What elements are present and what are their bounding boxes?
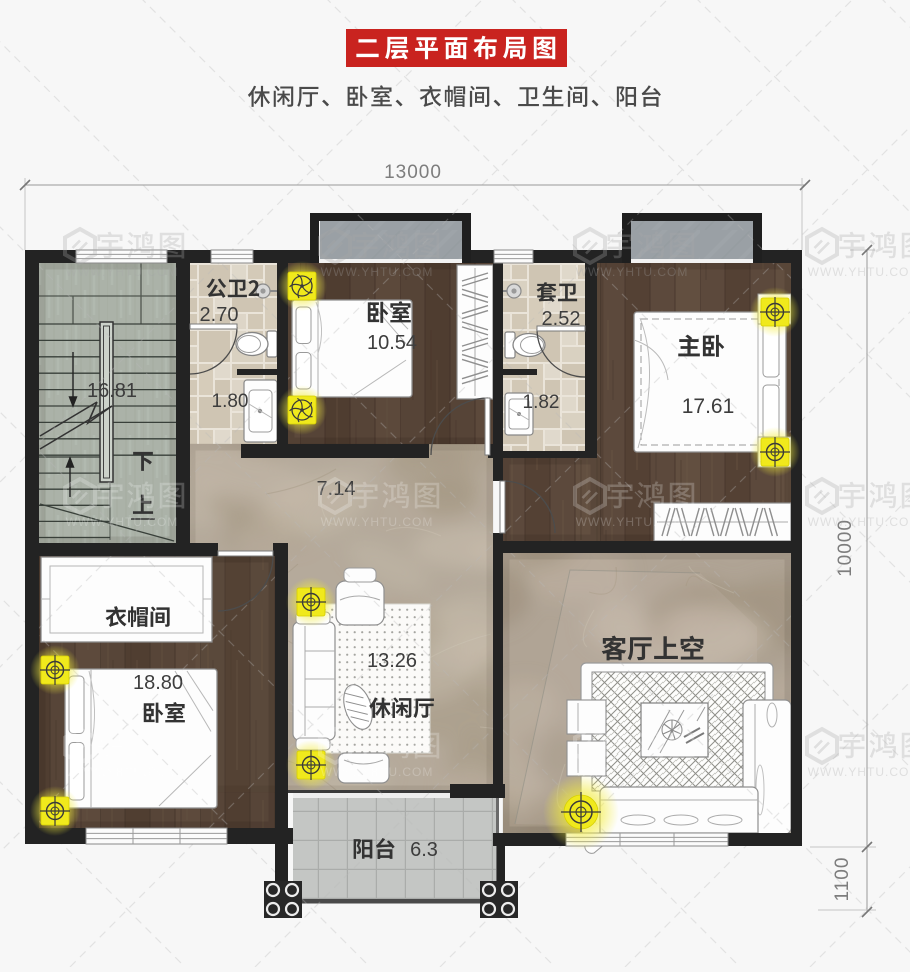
svg-text:WWW.YHTU.COM: WWW.YHTU.COM (576, 515, 689, 529)
svg-text:WWW.YHTU.COM: WWW.YHTU.COM (321, 265, 434, 279)
svg-text:16.81: 16.81 (87, 380, 137, 402)
svg-text:WWW.YHTU.COM: WWW.YHTU.COM (321, 765, 434, 779)
svg-text:2.52: 2.52 (542, 308, 581, 330)
svg-text:WWW.YHTU.COM: WWW.YHTU.COM (808, 765, 910, 779)
svg-text:WWW.YHTU.COM: WWW.YHTU.COM (576, 265, 689, 279)
svg-text:10.54: 10.54 (367, 332, 417, 354)
svg-text:WWW.YHTU.COM: WWW.YHTU.COM (66, 265, 179, 279)
svg-text:1100: 1100 (832, 857, 853, 902)
svg-text:6.3: 6.3 (410, 839, 438, 861)
svg-text:WWW.YHTU.COM: WWW.YHTU.COM (66, 515, 179, 529)
svg-text:2.70: 2.70 (200, 304, 239, 326)
svg-text:WWW.YHTU.COM: WWW.YHTU.COM (808, 265, 910, 279)
svg-text:13.26: 13.26 (367, 650, 417, 672)
svg-text:WWW.YHTU.COM: WWW.YHTU.COM (576, 765, 689, 779)
svg-text:WWW.YHTU.COM: WWW.YHTU.COM (321, 515, 434, 529)
svg-text:1.82: 1.82 (523, 392, 560, 413)
svg-text:WWW.YHTU.COM: WWW.YHTU.COM (66, 765, 179, 779)
svg-text:13000: 13000 (384, 162, 442, 183)
svg-text:1.80: 1.80 (212, 391, 249, 412)
svg-text:17.61: 17.61 (682, 395, 735, 418)
svg-text:18.80: 18.80 (133, 672, 183, 694)
svg-text:WWW.YHTU.COM: WWW.YHTU.COM (808, 515, 910, 529)
